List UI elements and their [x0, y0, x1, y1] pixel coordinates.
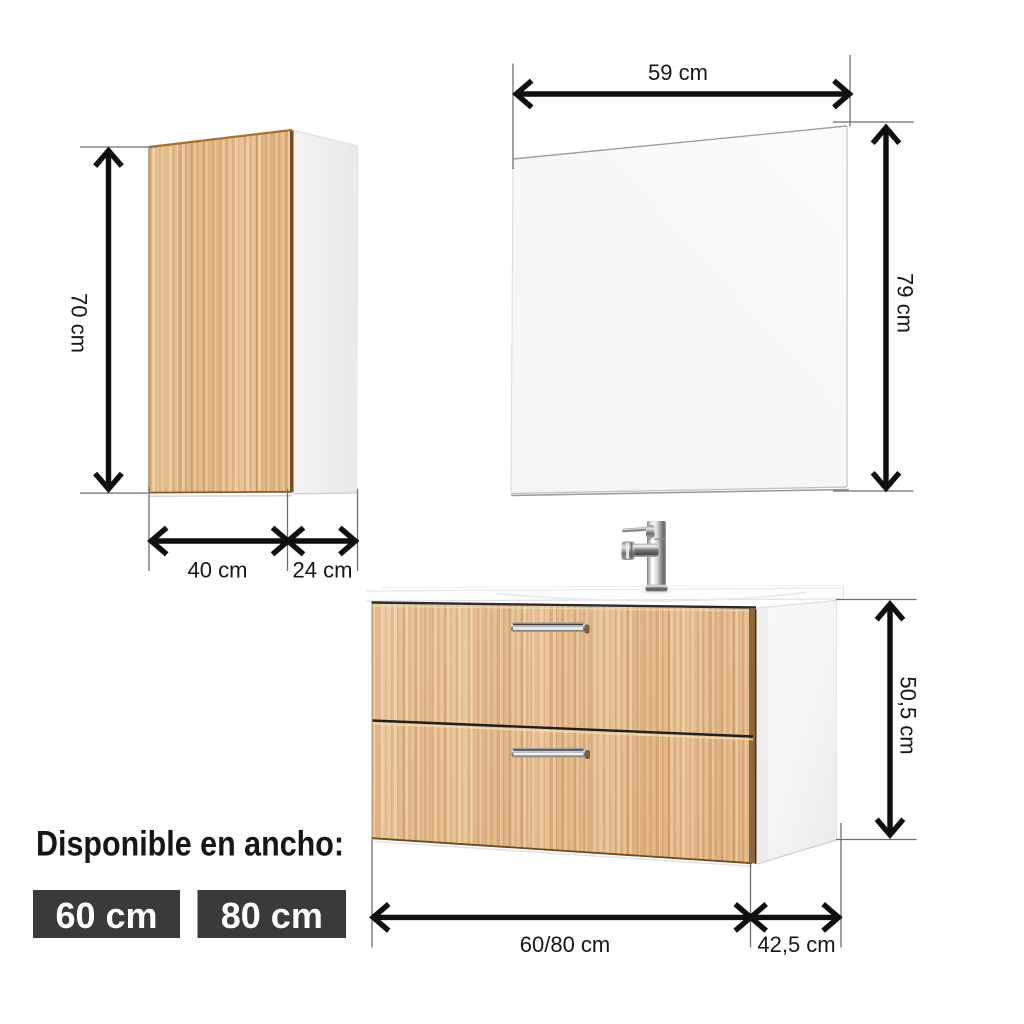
- svg-text:80 cm: 80 cm: [221, 895, 323, 936]
- svg-text:42,5 cm: 42,5 cm: [757, 932, 835, 957]
- svg-text:60/80 cm: 60/80 cm: [520, 932, 611, 957]
- svg-text:70 cm: 70 cm: [67, 293, 92, 353]
- svg-text:59 cm: 59 cm: [648, 60, 708, 85]
- svg-text:50,5 cm: 50,5 cm: [896, 676, 921, 754]
- svg-text:79 cm: 79 cm: [893, 273, 918, 333]
- svg-text:60 cm: 60 cm: [55, 895, 157, 936]
- svg-text:Disponible en ancho:: Disponible en ancho:: [36, 824, 344, 863]
- svg-text:40 cm: 40 cm: [188, 557, 248, 582]
- svg-text:24 cm: 24 cm: [293, 557, 353, 582]
